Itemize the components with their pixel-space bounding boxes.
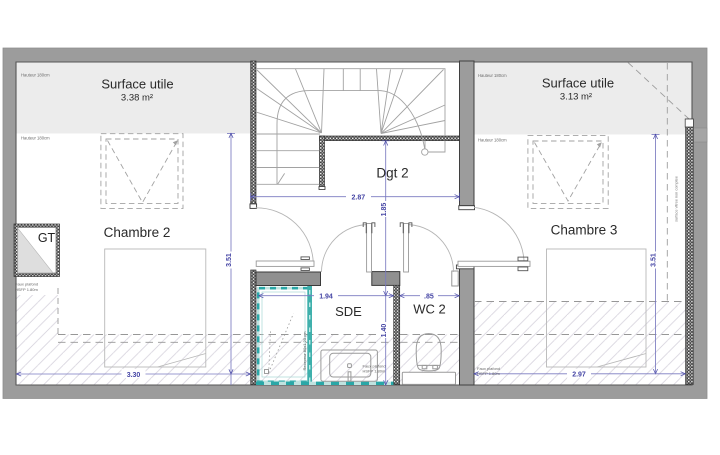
svg-text:Chambre 2: Chambre 2 [104,225,171,240]
svg-text:SDE: SDE [335,304,362,319]
svg-text:HSFP 1.80m: HSFP 1.80m [477,371,500,376]
svg-text:GT: GT [38,231,56,245]
svg-text:Hauteur 180cm: Hauteur 180cm [21,72,50,77]
svg-text:1.40: 1.40 [381,324,388,338]
svg-text:Dgt 2: Dgt 2 [376,166,408,181]
svg-text:HSFP 1.80m: HSFP 1.80m [15,287,38,292]
svg-text:3.13 m²: 3.13 m² [560,92,592,103]
svg-text:WC 2: WC 2 [413,302,446,317]
svg-text:Hauteur 180cm: Hauteur 180cm [21,135,50,140]
svg-text:HSFP 1.80m: HSFP 1.80m [363,369,386,374]
svg-text:Surface utile: Surface utile [101,76,173,91]
svg-text:surface vitree non comptee: surface vitree non comptee [675,176,679,222]
svg-text:.85: .85 [424,293,434,300]
svg-text:Hauteur 180cm: Hauteur 180cm [478,73,507,78]
svg-text:3.30: 3.30 [127,372,141,379]
svg-text:Faux plafond: Faux plafond [15,282,38,287]
svg-text:3.51: 3.51 [226,253,233,267]
svg-text:1.85: 1.85 [381,203,388,217]
svg-text:2.87: 2.87 [351,194,365,201]
svg-text:2.97: 2.97 [572,372,586,379]
svg-text:Chambre 3: Chambre 3 [551,223,618,238]
svg-text:1.94: 1.94 [319,293,333,300]
svg-text:Receveur 80x1.20 cm: Receveur 80x1.20 cm [302,331,307,371]
svg-text:3.51: 3.51 [651,253,658,267]
svg-text:3.38 m²: 3.38 m² [121,93,153,104]
svg-text:Surface utile: Surface utile [542,75,614,90]
svg-text:Hauteur 180cm: Hauteur 180cm [478,137,507,142]
